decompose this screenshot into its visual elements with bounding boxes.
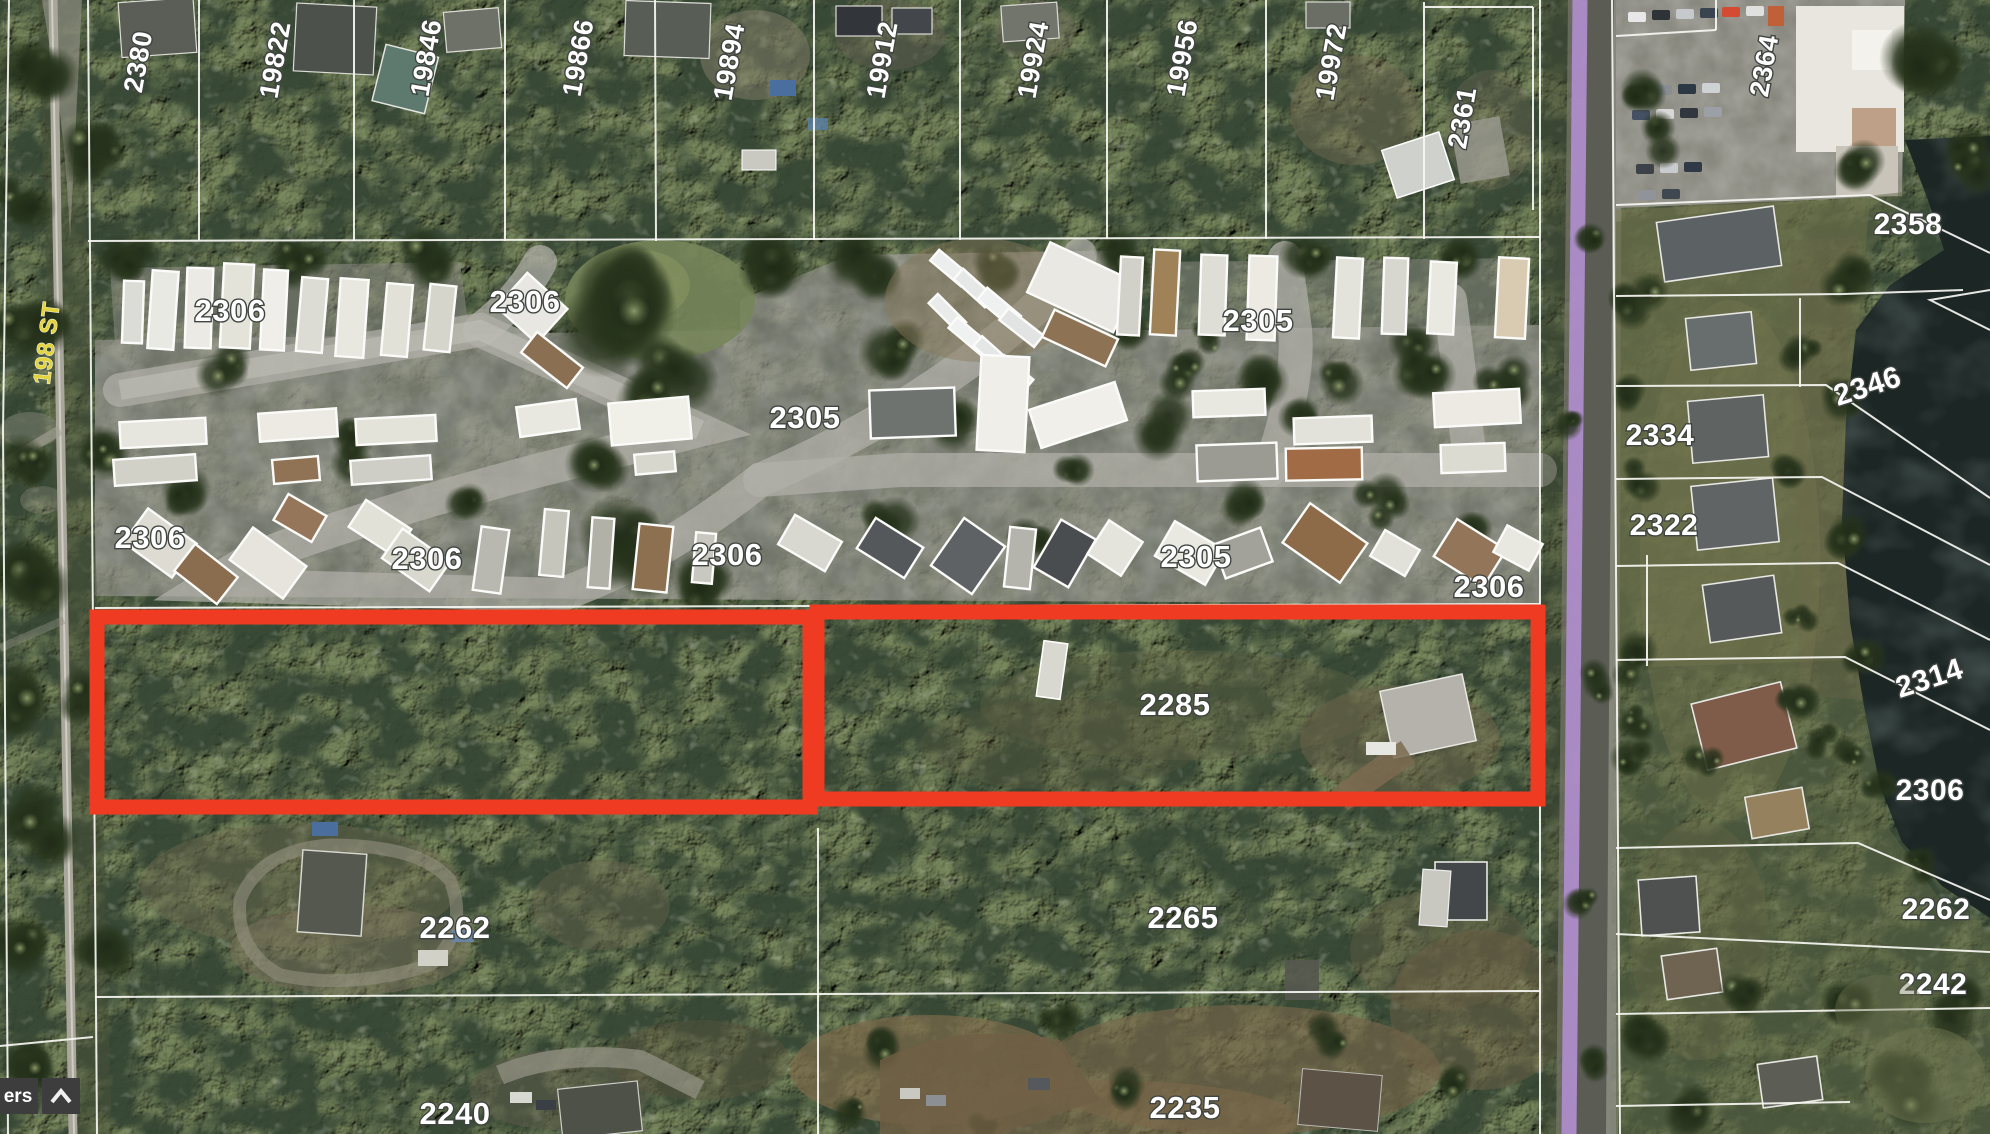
svg-text:ers: ers [4,1086,33,1107]
svg-text:2306: 2306 [392,541,463,576]
svg-text:2305: 2305 [1223,303,1294,338]
svg-text:2240: 2240 [420,1096,491,1131]
svg-text:2306: 2306 [1896,774,1965,807]
svg-text:2305: 2305 [770,400,841,435]
svg-text:2285: 2285 [1140,687,1211,722]
svg-text:2235: 2235 [1150,1090,1221,1125]
svg-text:2306: 2306 [115,520,186,555]
svg-text:2358: 2358 [1874,208,1943,241]
svg-text:2262: 2262 [420,910,491,945]
svg-text:2306: 2306 [1454,569,1525,604]
svg-text:2306: 2306 [490,284,561,319]
svg-text:2322: 2322 [1630,509,1699,542]
svg-text:2262: 2262 [1902,893,1971,926]
svg-text:2306: 2306 [195,293,266,328]
svg-text:2306: 2306 [692,537,763,572]
svg-text:2305: 2305 [1161,539,1232,574]
svg-text:2334: 2334 [1626,419,1695,452]
svg-text:2265: 2265 [1148,900,1219,935]
